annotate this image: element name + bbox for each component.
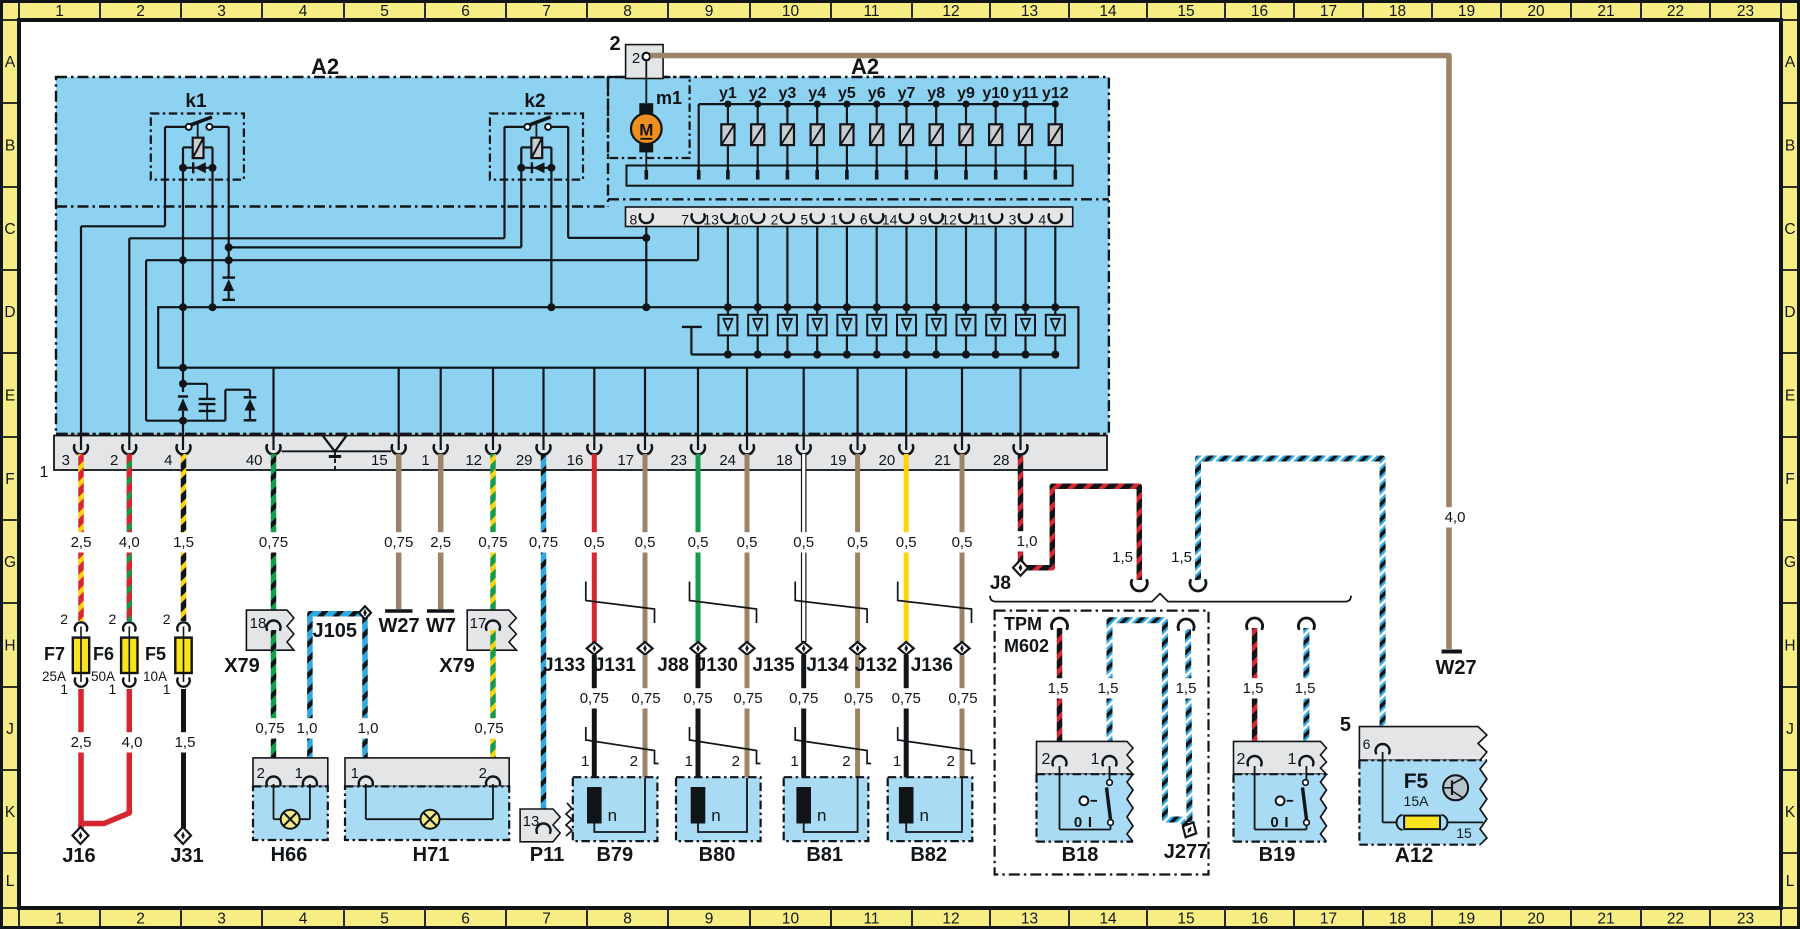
- svg-text:A: A: [5, 54, 16, 71]
- svg-text:4: 4: [1038, 212, 1046, 228]
- svg-text:L: L: [1786, 873, 1795, 890]
- svg-text:0,5: 0,5: [635, 534, 656, 551]
- svg-text:11: 11: [972, 212, 987, 228]
- svg-text:2: 2: [771, 212, 779, 228]
- svg-text:1,5: 1,5: [173, 534, 194, 551]
- svg-text:50A: 50A: [91, 669, 115, 684]
- svg-text:1: 1: [790, 753, 798, 770]
- svg-text:1: 1: [295, 765, 303, 782]
- svg-text:n: n: [817, 806, 826, 825]
- svg-text:J105: J105: [313, 620, 358, 642]
- svg-text:D: D: [4, 304, 15, 321]
- svg-text:2: 2: [163, 611, 171, 627]
- svg-text:0,5: 0,5: [688, 534, 709, 551]
- svg-text:B82: B82: [910, 844, 947, 866]
- svg-text:2: 2: [842, 753, 850, 770]
- svg-text:0,5: 0,5: [847, 534, 868, 551]
- svg-text:10A: 10A: [143, 669, 167, 684]
- svg-text:0,5: 0,5: [896, 534, 917, 551]
- svg-text:G: G: [4, 554, 16, 571]
- svg-text:9: 9: [705, 911, 714, 928]
- svg-text:2: 2: [1237, 751, 1246, 768]
- svg-text:20: 20: [1527, 911, 1545, 928]
- svg-text:0,75: 0,75: [631, 690, 660, 707]
- svg-text:15: 15: [1456, 825, 1472, 841]
- svg-text:2: 2: [110, 452, 118, 469]
- svg-text:4: 4: [299, 3, 308, 20]
- svg-text:J16: J16: [62, 845, 95, 867]
- svg-text:2: 2: [630, 753, 638, 770]
- svg-text:17: 17: [1320, 911, 1337, 928]
- svg-text:1: 1: [55, 911, 64, 928]
- svg-text:12: 12: [942, 911, 959, 928]
- svg-text:1: 1: [421, 452, 429, 469]
- svg-text:K: K: [5, 804, 16, 821]
- svg-text:0,75: 0,75: [384, 534, 413, 551]
- svg-text:H71: H71: [413, 844, 450, 866]
- svg-text:0: 0: [1074, 814, 1082, 831]
- svg-text:12: 12: [942, 3, 959, 20]
- svg-text:B: B: [1785, 138, 1795, 155]
- svg-text:0,75: 0,75: [474, 720, 503, 737]
- svg-text:2: 2: [257, 765, 265, 782]
- svg-text:0,5: 0,5: [793, 534, 814, 551]
- svg-text:J136: J136: [911, 655, 953, 676]
- svg-text:2: 2: [60, 611, 68, 627]
- svg-text:6: 6: [860, 212, 868, 228]
- svg-text:1: 1: [351, 765, 359, 782]
- svg-text:6: 6: [461, 911, 470, 928]
- svg-text:H66: H66: [271, 844, 308, 866]
- svg-text:2: 2: [136, 3, 145, 20]
- svg-text:2: 2: [479, 765, 487, 782]
- svg-text:5: 5: [800, 212, 808, 228]
- svg-text:4,0: 4,0: [122, 734, 143, 751]
- svg-text:y7: y7: [898, 85, 916, 102]
- svg-text:2: 2: [109, 611, 117, 627]
- svg-text:25A: 25A: [42, 669, 66, 684]
- svg-text:1: 1: [1091, 751, 1100, 768]
- svg-text:J31: J31: [170, 845, 203, 867]
- svg-text:1,0: 1,0: [358, 720, 379, 737]
- svg-text:6: 6: [461, 3, 470, 20]
- svg-text:0,5: 0,5: [952, 534, 973, 551]
- svg-text:y6: y6: [868, 85, 886, 102]
- svg-text:1,5: 1,5: [1295, 680, 1316, 697]
- svg-text:B19: B19: [1259, 844, 1296, 866]
- svg-text:15: 15: [1177, 911, 1194, 928]
- svg-text:E: E: [5, 388, 15, 405]
- svg-text:F6: F6: [93, 644, 114, 664]
- svg-text:J130: J130: [696, 655, 738, 676]
- svg-text:13: 13: [703, 212, 719, 228]
- svg-text:3: 3: [62, 452, 70, 469]
- svg-text:A: A: [1785, 54, 1796, 71]
- svg-text:0,75: 0,75: [259, 534, 288, 551]
- svg-text:X79: X79: [224, 655, 260, 677]
- svg-text:1,5: 1,5: [1176, 680, 1197, 697]
- svg-text:0,75: 0,75: [789, 690, 818, 707]
- svg-text:2,5: 2,5: [71, 534, 92, 551]
- svg-text:1: 1: [55, 3, 64, 20]
- svg-text:0,75: 0,75: [733, 690, 762, 707]
- svg-text:4: 4: [164, 452, 172, 469]
- svg-text:23: 23: [670, 452, 687, 469]
- svg-text:5: 5: [1340, 714, 1351, 736]
- svg-text:0,75: 0,75: [844, 690, 873, 707]
- svg-text:F5: F5: [1404, 770, 1429, 793]
- svg-text:23: 23: [1737, 911, 1754, 928]
- svg-text:M602: M602: [1004, 636, 1049, 656]
- svg-text:1: 1: [1288, 751, 1297, 768]
- svg-text:B18: B18: [1062, 844, 1099, 866]
- svg-text:F5: F5: [145, 644, 166, 664]
- svg-text:A12: A12: [1395, 844, 1434, 867]
- svg-text:G: G: [1784, 554, 1796, 571]
- svg-text:22: 22: [1667, 911, 1684, 928]
- svg-text:1,5: 1,5: [175, 734, 196, 751]
- svg-text:13: 13: [1021, 911, 1038, 928]
- svg-text:11: 11: [863, 911, 879, 928]
- svg-text:J134: J134: [806, 655, 849, 676]
- svg-text:1: 1: [893, 753, 901, 770]
- svg-text:C: C: [4, 221, 15, 238]
- svg-text:1,5: 1,5: [1112, 549, 1133, 566]
- svg-text:3: 3: [217, 911, 226, 928]
- svg-text:7: 7: [681, 212, 689, 228]
- svg-text:15: 15: [371, 452, 388, 469]
- svg-text:n: n: [711, 806, 720, 825]
- svg-text:F: F: [5, 471, 14, 488]
- svg-text:15A: 15A: [1404, 793, 1430, 809]
- svg-text:21: 21: [934, 452, 951, 469]
- svg-text:5: 5: [380, 3, 389, 20]
- svg-text:L: L: [6, 873, 15, 890]
- svg-text:8: 8: [623, 911, 632, 928]
- svg-text:8: 8: [623, 3, 632, 20]
- svg-text:0,75: 0,75: [683, 690, 712, 707]
- svg-text:23: 23: [1737, 3, 1754, 20]
- svg-text:H: H: [1784, 638, 1795, 655]
- svg-text:J132: J132: [855, 655, 897, 676]
- svg-text:J277: J277: [1164, 841, 1209, 863]
- svg-text:3: 3: [217, 3, 226, 20]
- svg-text:17: 17: [470, 615, 487, 632]
- svg-text:y4: y4: [808, 85, 826, 102]
- svg-text:20: 20: [1527, 3, 1545, 20]
- svg-text:19: 19: [830, 452, 847, 469]
- svg-text:2,5: 2,5: [71, 734, 92, 751]
- svg-text:19: 19: [1458, 911, 1475, 928]
- svg-text:F7: F7: [44, 644, 65, 664]
- svg-text:24: 24: [719, 452, 736, 469]
- svg-text:y5: y5: [838, 85, 856, 102]
- svg-text:1,5: 1,5: [1171, 549, 1192, 566]
- svg-text:J135: J135: [752, 655, 795, 676]
- svg-text:0,5: 0,5: [584, 534, 605, 551]
- svg-text:10: 10: [733, 212, 749, 228]
- svg-text:13: 13: [1021, 3, 1038, 20]
- svg-text:21: 21: [1597, 3, 1614, 20]
- svg-text:2: 2: [632, 50, 640, 67]
- svg-text:10: 10: [782, 911, 800, 928]
- svg-text:W7: W7: [426, 615, 456, 637]
- svg-text:0,75: 0,75: [580, 690, 609, 707]
- svg-text:y1: y1: [719, 85, 737, 102]
- svg-text:0,75: 0,75: [529, 534, 558, 551]
- svg-text:0,75: 0,75: [255, 720, 284, 737]
- svg-text:1,0: 1,0: [1017, 533, 1038, 550]
- svg-text:22: 22: [1667, 3, 1684, 20]
- svg-text:y9: y9: [957, 85, 975, 102]
- svg-text:M: M: [639, 121, 653, 140]
- svg-text:B79: B79: [596, 844, 633, 866]
- svg-text:29: 29: [516, 452, 533, 469]
- svg-text:A2: A2: [311, 54, 339, 79]
- svg-text:P11: P11: [530, 844, 564, 866]
- svg-text:14: 14: [1099, 3, 1117, 20]
- svg-text:J8: J8: [990, 573, 1011, 594]
- svg-text:K: K: [1785, 804, 1796, 821]
- svg-text:H: H: [4, 638, 15, 655]
- svg-text:2: 2: [732, 753, 740, 770]
- svg-text:n: n: [608, 806, 617, 825]
- svg-text:19: 19: [1458, 3, 1475, 20]
- svg-text:J133: J133: [543, 655, 585, 676]
- svg-text:0,75: 0,75: [478, 534, 507, 551]
- svg-text:2: 2: [609, 33, 620, 55]
- svg-text:0,75: 0,75: [892, 690, 921, 707]
- svg-text:y2: y2: [749, 85, 767, 102]
- svg-text:I: I: [1284, 814, 1288, 831]
- svg-text:17: 17: [1320, 3, 1337, 20]
- svg-text:J88: J88: [657, 655, 689, 676]
- svg-text:4,0: 4,0: [1445, 509, 1466, 526]
- svg-text:k1: k1: [185, 91, 207, 112]
- svg-text:y11: y11: [1013, 85, 1039, 102]
- svg-text:X79: X79: [439, 655, 475, 677]
- svg-text:2: 2: [1042, 751, 1051, 768]
- svg-text:0: 0: [1270, 814, 1278, 831]
- svg-text:y8: y8: [927, 85, 945, 102]
- svg-text:10: 10: [782, 3, 800, 20]
- svg-text:18: 18: [776, 452, 793, 469]
- svg-text:14: 14: [882, 212, 898, 228]
- svg-text:J: J: [6, 721, 14, 738]
- svg-text:7: 7: [542, 911, 551, 928]
- svg-text:8: 8: [630, 212, 638, 228]
- svg-text:16: 16: [567, 452, 584, 469]
- svg-text:5: 5: [380, 911, 389, 928]
- svg-text:1: 1: [685, 753, 693, 770]
- svg-text:7: 7: [542, 3, 551, 20]
- svg-text:B80: B80: [699, 844, 736, 866]
- svg-text:1,5: 1,5: [1048, 680, 1069, 697]
- svg-text:4,0: 4,0: [119, 534, 140, 551]
- svg-text:18: 18: [1389, 3, 1406, 20]
- svg-text:1,5: 1,5: [1243, 680, 1264, 697]
- svg-text:2: 2: [947, 753, 955, 770]
- svg-text:B81: B81: [806, 844, 843, 866]
- svg-text:W27: W27: [1435, 657, 1476, 679]
- svg-text:18: 18: [1389, 911, 1406, 928]
- svg-text:16: 16: [1251, 911, 1268, 928]
- svg-text:9: 9: [919, 212, 927, 228]
- svg-text:J131: J131: [594, 655, 637, 676]
- svg-text:9: 9: [705, 3, 714, 20]
- svg-text:B: B: [5, 138, 15, 155]
- svg-text:0,5: 0,5: [737, 534, 758, 551]
- svg-text:2,5: 2,5: [430, 534, 451, 551]
- svg-text:18: 18: [250, 615, 267, 632]
- svg-text:0,75: 0,75: [948, 690, 977, 707]
- svg-text:1: 1: [830, 212, 838, 228]
- svg-text:15: 15: [1177, 3, 1194, 20]
- svg-text:2: 2: [136, 911, 145, 928]
- svg-text:3: 3: [1009, 212, 1017, 228]
- svg-text:17: 17: [617, 452, 634, 469]
- svg-text:12: 12: [465, 452, 482, 469]
- svg-text:J: J: [1786, 721, 1794, 738]
- svg-text:C: C: [1784, 221, 1795, 238]
- svg-text:E: E: [1785, 388, 1795, 405]
- svg-text:6: 6: [1363, 736, 1371, 752]
- svg-text:12: 12: [941, 212, 957, 228]
- svg-text:y12: y12: [1042, 85, 1069, 102]
- svg-text:y3: y3: [779, 85, 797, 102]
- svg-text:1,0: 1,0: [297, 720, 318, 737]
- svg-text:1: 1: [581, 753, 589, 770]
- svg-text:40: 40: [246, 452, 263, 469]
- svg-text:n: n: [919, 806, 928, 825]
- svg-text:4: 4: [299, 911, 308, 928]
- svg-text:16: 16: [1251, 3, 1268, 20]
- svg-text:m1: m1: [656, 88, 682, 108]
- svg-text:W27: W27: [378, 615, 419, 637]
- svg-text:28: 28: [993, 452, 1010, 469]
- svg-text:20: 20: [879, 452, 896, 469]
- svg-text:1: 1: [40, 464, 49, 481]
- svg-text:21: 21: [1597, 911, 1614, 928]
- svg-text:14: 14: [1099, 911, 1117, 928]
- svg-text:I: I: [1088, 814, 1092, 831]
- svg-text:D: D: [1784, 304, 1795, 321]
- svg-text:11: 11: [863, 3, 879, 20]
- svg-text:TPM: TPM: [1004, 614, 1042, 634]
- svg-text:1,5: 1,5: [1098, 680, 1119, 697]
- svg-text:F: F: [1785, 471, 1794, 488]
- svg-text:k2: k2: [524, 91, 545, 112]
- svg-text:y10: y10: [982, 85, 1009, 102]
